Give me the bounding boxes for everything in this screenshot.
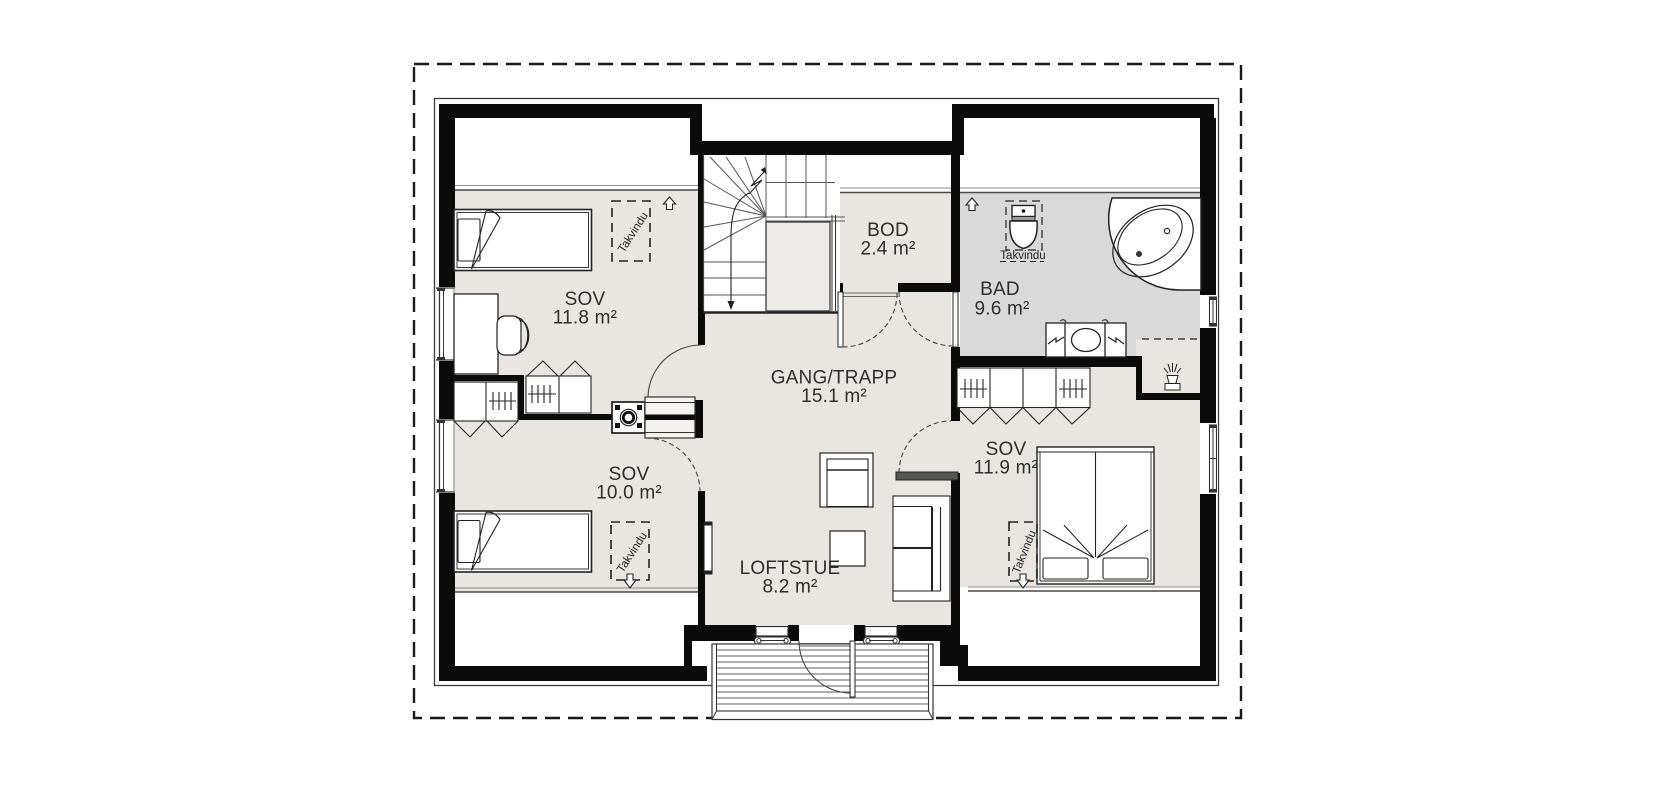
svg-text:BAD: BAD	[980, 279, 1020, 300]
svg-text:10.0 m²: 10.0 m²	[596, 483, 662, 504]
svg-text:8.2 m²: 8.2 m²	[762, 577, 817, 598]
svg-text:15.1 m²: 15.1 m²	[801, 386, 867, 407]
svg-text:9.6 m²: 9.6 m²	[974, 299, 1029, 320]
svg-text:11.9 m²: 11.9 m²	[974, 458, 1038, 479]
svg-text:Takvindu: Takvindu	[1000, 250, 1045, 262]
svg-text:2.4 m²: 2.4 m²	[860, 239, 915, 260]
svg-text:11.8 m²: 11.8 m²	[553, 308, 617, 329]
